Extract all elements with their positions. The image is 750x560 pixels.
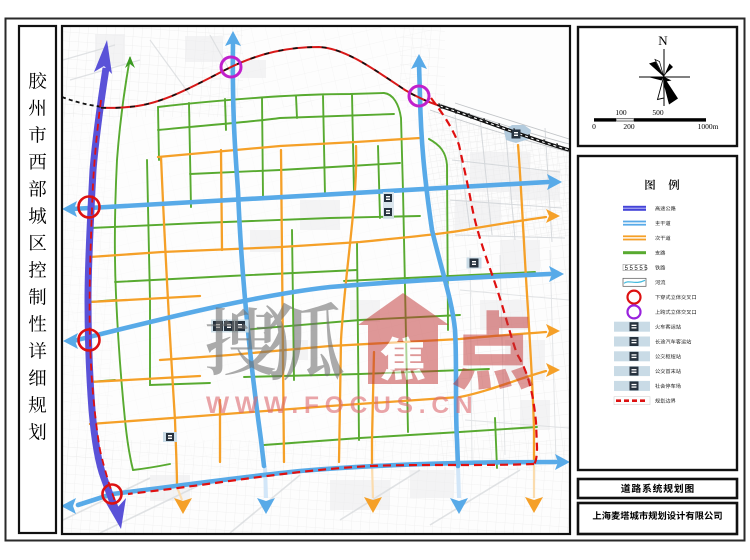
svg-text:200: 200 <box>623 122 635 131</box>
svg-text:N: N <box>658 33 668 48</box>
svg-text:500: 500 <box>652 108 664 117</box>
svg-text:1000m: 1000m <box>698 122 719 131</box>
svg-text:55555: 55555 <box>625 265 650 272</box>
svg-text:0: 0 <box>592 122 596 131</box>
svg-text:WWW.FOCUS.CN: WWW.FOCUS.CN <box>206 392 478 419</box>
svg-text:100: 100 <box>615 108 627 117</box>
